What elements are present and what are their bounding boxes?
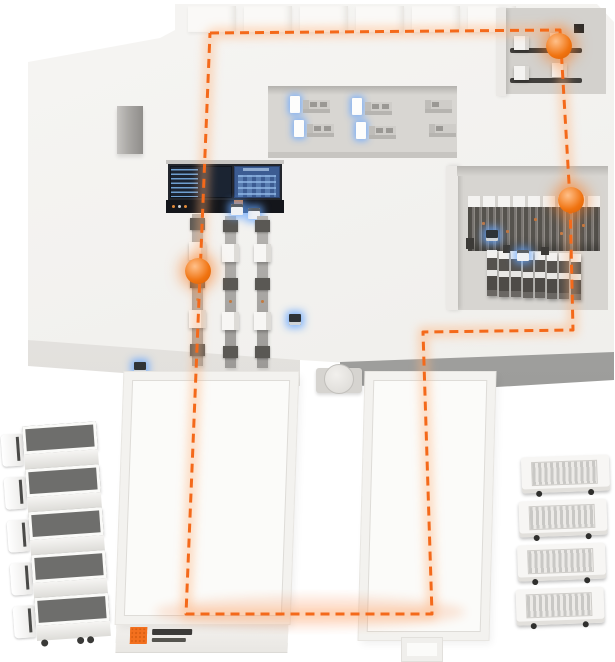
truck-roof: [531, 460, 598, 486]
rack-unit: [547, 253, 557, 299]
dashboard-body: [168, 164, 282, 200]
control-dashboard: [166, 160, 284, 213]
truck-wheel: [583, 621, 589, 627]
table-slot: [386, 128, 393, 133]
truck: [12, 593, 113, 646]
table-slot: [382, 104, 389, 109]
rack-item: [534, 218, 537, 221]
logo-text-en: [152, 638, 186, 642]
left-dock-hall: [116, 372, 299, 624]
rack-unit: [499, 251, 509, 297]
workstation: [356, 124, 398, 142]
truck-wheel: [41, 639, 48, 646]
terminal-glow: [294, 120, 304, 137]
inbound-machine: [514, 66, 529, 80]
logo-mark-icon: [130, 627, 148, 644]
right-dock-hall: [358, 372, 495, 640]
truck-roof: [529, 504, 596, 530]
table-slot: [436, 126, 443, 131]
truck-cab: [4, 476, 27, 509]
inbound-machine: [552, 63, 567, 77]
conveyor-unit: [255, 278, 270, 290]
inbound-machine: [514, 36, 529, 50]
dashboard-screen-left: [170, 166, 232, 198]
conveyor-box: [254, 312, 271, 330]
conveyor-box: [189, 310, 206, 328]
truck-wheel: [532, 579, 538, 585]
table-slot: [376, 128, 383, 133]
wall-pillar: [117, 106, 143, 154]
workstation: [294, 122, 336, 140]
workstation: [412, 98, 454, 116]
skylight: [300, 6, 348, 32]
conveyor-line: [192, 214, 203, 366]
conveyor-unit: [190, 218, 205, 230]
dashboard-screen-right: [234, 166, 280, 198]
conveyor-unit: [255, 220, 270, 232]
rack-unit: [487, 250, 497, 296]
rack-item: [582, 224, 585, 227]
conveyor-unit: [223, 220, 238, 232]
warehouse-scene: [0, 0, 615, 662]
conveyor-dot: [261, 300, 264, 303]
terminal-glow: [352, 98, 362, 115]
truck-cab: [7, 519, 30, 552]
route-marker-inbound: [546, 33, 572, 59]
scanner-box: [574, 24, 584, 33]
status-light: [172, 205, 175, 208]
turntable-disc: [324, 364, 354, 394]
rack-item: [482, 222, 485, 225]
rack-room-wall: [446, 166, 458, 310]
route-marker-rack: [558, 187, 584, 213]
conveyor-dot: [196, 298, 199, 301]
truck-wheel: [534, 535, 540, 541]
conveyor-line: [225, 216, 236, 368]
truck: [518, 498, 611, 541]
conveyor-unit: [190, 344, 205, 356]
iot-sensor: [517, 250, 529, 261]
truck-wheel: [536, 491, 542, 497]
truck-cab: [10, 562, 33, 595]
truck-cab: [13, 605, 36, 638]
route-marker-conveyor: [185, 258, 211, 284]
crate: [466, 238, 474, 249]
truck-roof: [527, 548, 594, 574]
conveyor-unit: [223, 346, 238, 358]
dock-vestibule: [402, 638, 442, 661]
rack-unit: [571, 254, 581, 300]
skylight: [412, 6, 460, 32]
table-slot: [324, 126, 331, 131]
table-slot: [310, 102, 317, 107]
rack-room-top-edge: [457, 166, 608, 176]
rack-item: [506, 230, 509, 233]
left-truck-fleet: [0, 421, 124, 658]
company-logo: [130, 627, 201, 645]
rack-unit: [535, 252, 545, 298]
workstation: [290, 98, 332, 116]
workstation: [416, 122, 458, 140]
rack-item: [560, 232, 563, 235]
rack-slats: [468, 207, 600, 251]
skylight: [188, 6, 236, 32]
turntable-platform: [316, 368, 362, 393]
logo-text-cn: [152, 629, 192, 635]
terminal-glow: [356, 122, 366, 139]
conveyor-unit: [255, 346, 270, 358]
status-light: [178, 205, 181, 208]
corridor-front-edge: [268, 152, 457, 158]
truck: [517, 542, 610, 585]
status-light: [184, 205, 187, 208]
conveyor-dot: [229, 300, 232, 303]
truck: [521, 454, 614, 497]
crate: [503, 245, 510, 253]
conveyor-line: [257, 216, 268, 368]
truck-wheel: [87, 636, 94, 643]
truck-wheel: [588, 489, 594, 495]
truck-roof: [526, 592, 593, 618]
truck-wheel: [77, 637, 84, 644]
truck: [515, 587, 608, 630]
conveyor-box: [254, 244, 271, 262]
table-slot: [320, 102, 327, 107]
conveyor-unit: [223, 278, 238, 290]
right-truck-fleet: [511, 454, 615, 637]
table-slot: [314, 126, 321, 131]
iot-sensor: [486, 230, 498, 241]
truck-wheel: [584, 577, 590, 583]
skylight: [244, 6, 292, 32]
terminal-glow: [290, 96, 300, 113]
conveyor-box: [222, 312, 239, 330]
truck-wheel: [586, 533, 592, 539]
conveyor-box: [222, 244, 239, 262]
rack-unit: [559, 253, 569, 299]
workstation: [352, 100, 394, 118]
iot-sensor: [231, 204, 243, 215]
inbound-room-wall: [496, 8, 506, 96]
truck-wheel: [531, 623, 537, 629]
crate: [541, 247, 549, 255]
skylight: [356, 6, 404, 32]
table-slot: [432, 102, 439, 107]
corridor-shadow: [268, 86, 457, 95]
iot-sensor: [289, 314, 301, 325]
table-slot: [372, 104, 379, 109]
truck-cab: [1, 434, 24, 467]
